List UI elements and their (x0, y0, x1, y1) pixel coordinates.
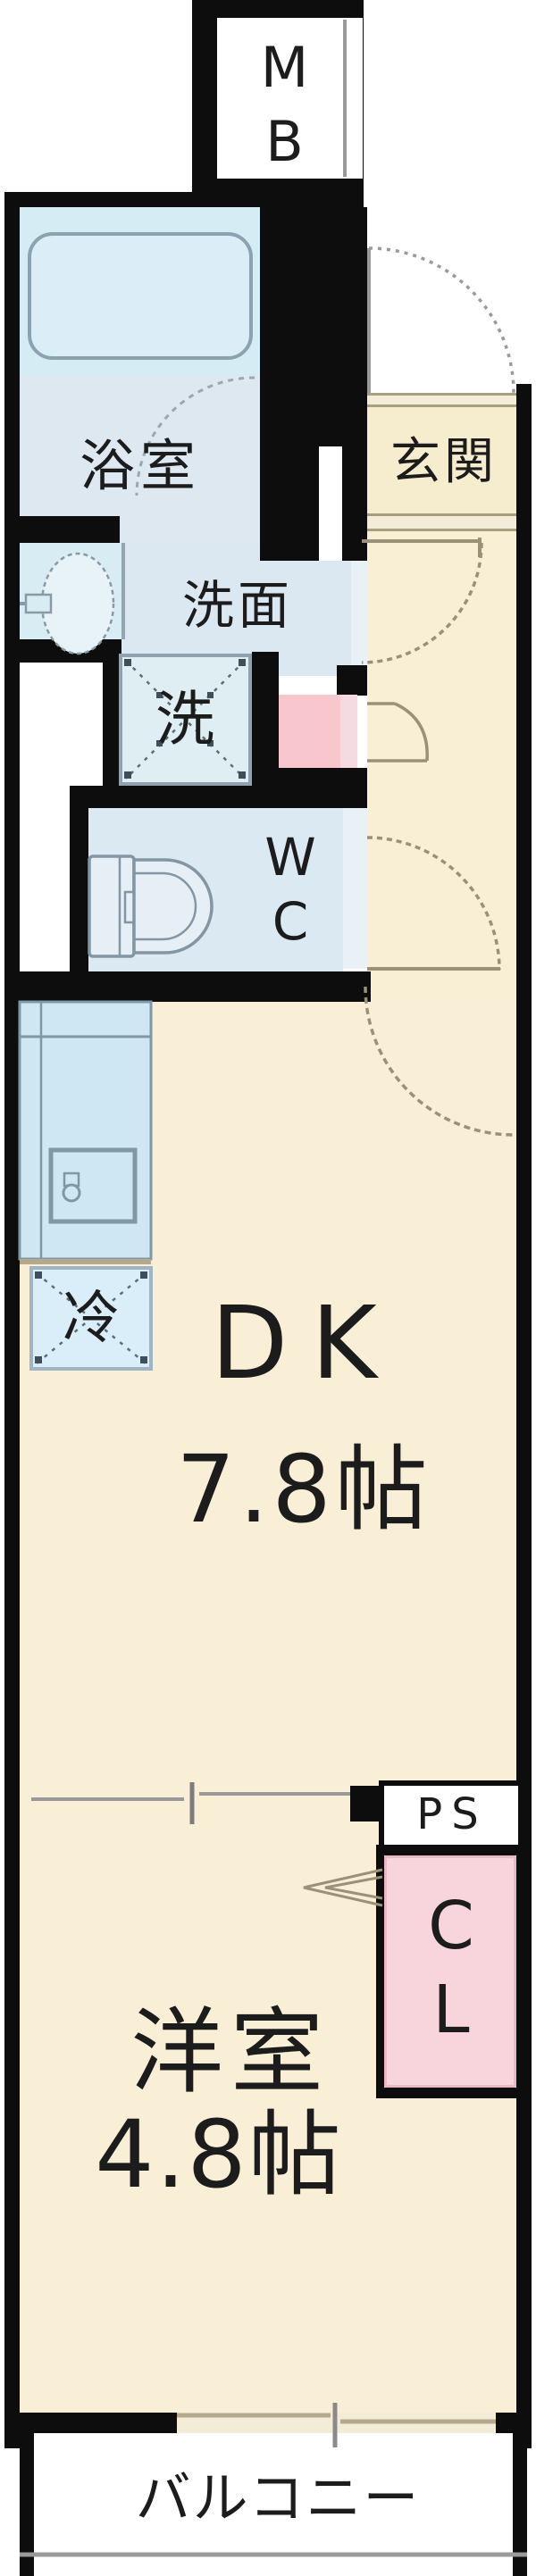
wc-door-arc (367, 838, 499, 970)
western-room-label: 洋室 (130, 2005, 331, 2098)
bathtub-icon (29, 234, 251, 358)
floor-plan: MB 浴室 玄関 洗面 洗 WC 冷 DK 7.8帖 PS CL 洋室 4.8帖… (0, 0, 536, 2576)
sliding-door-icon (31, 1782, 350, 1824)
kitchen-counter-icon (20, 1002, 151, 1262)
washroom-door-arc (362, 543, 482, 663)
dk-size-label: 7.8帖 (176, 1443, 431, 1536)
closet-label: CL (418, 1888, 484, 2055)
pipe-space-label: PS (416, 1793, 487, 1836)
entrance-door-arc (369, 248, 514, 393)
western-room-size-label: 4.8帖 (95, 2108, 342, 2201)
folding-door-icon (304, 1870, 382, 1905)
washbasin-icon (42, 554, 113, 654)
fridge-label: 冷 (63, 1290, 120, 1347)
entrance-label: 玄関 (390, 438, 498, 488)
sliding-window-icon (177, 2403, 496, 2447)
dk-door-arc (365, 987, 514, 1135)
washer-label: 洗 (155, 690, 214, 749)
toilet-icon (89, 856, 212, 956)
meter-box-label: MB (256, 35, 312, 183)
hatch-door-arc (395, 704, 427, 761)
balcony-label: バルコニー (136, 2471, 421, 2526)
wc-label: WC (264, 827, 316, 955)
washroom-label: 洗面 (182, 579, 293, 631)
washbasin-faucet (26, 595, 51, 613)
dk-label: DK (211, 1294, 400, 1394)
bathroom-label: 浴室 (80, 438, 201, 494)
